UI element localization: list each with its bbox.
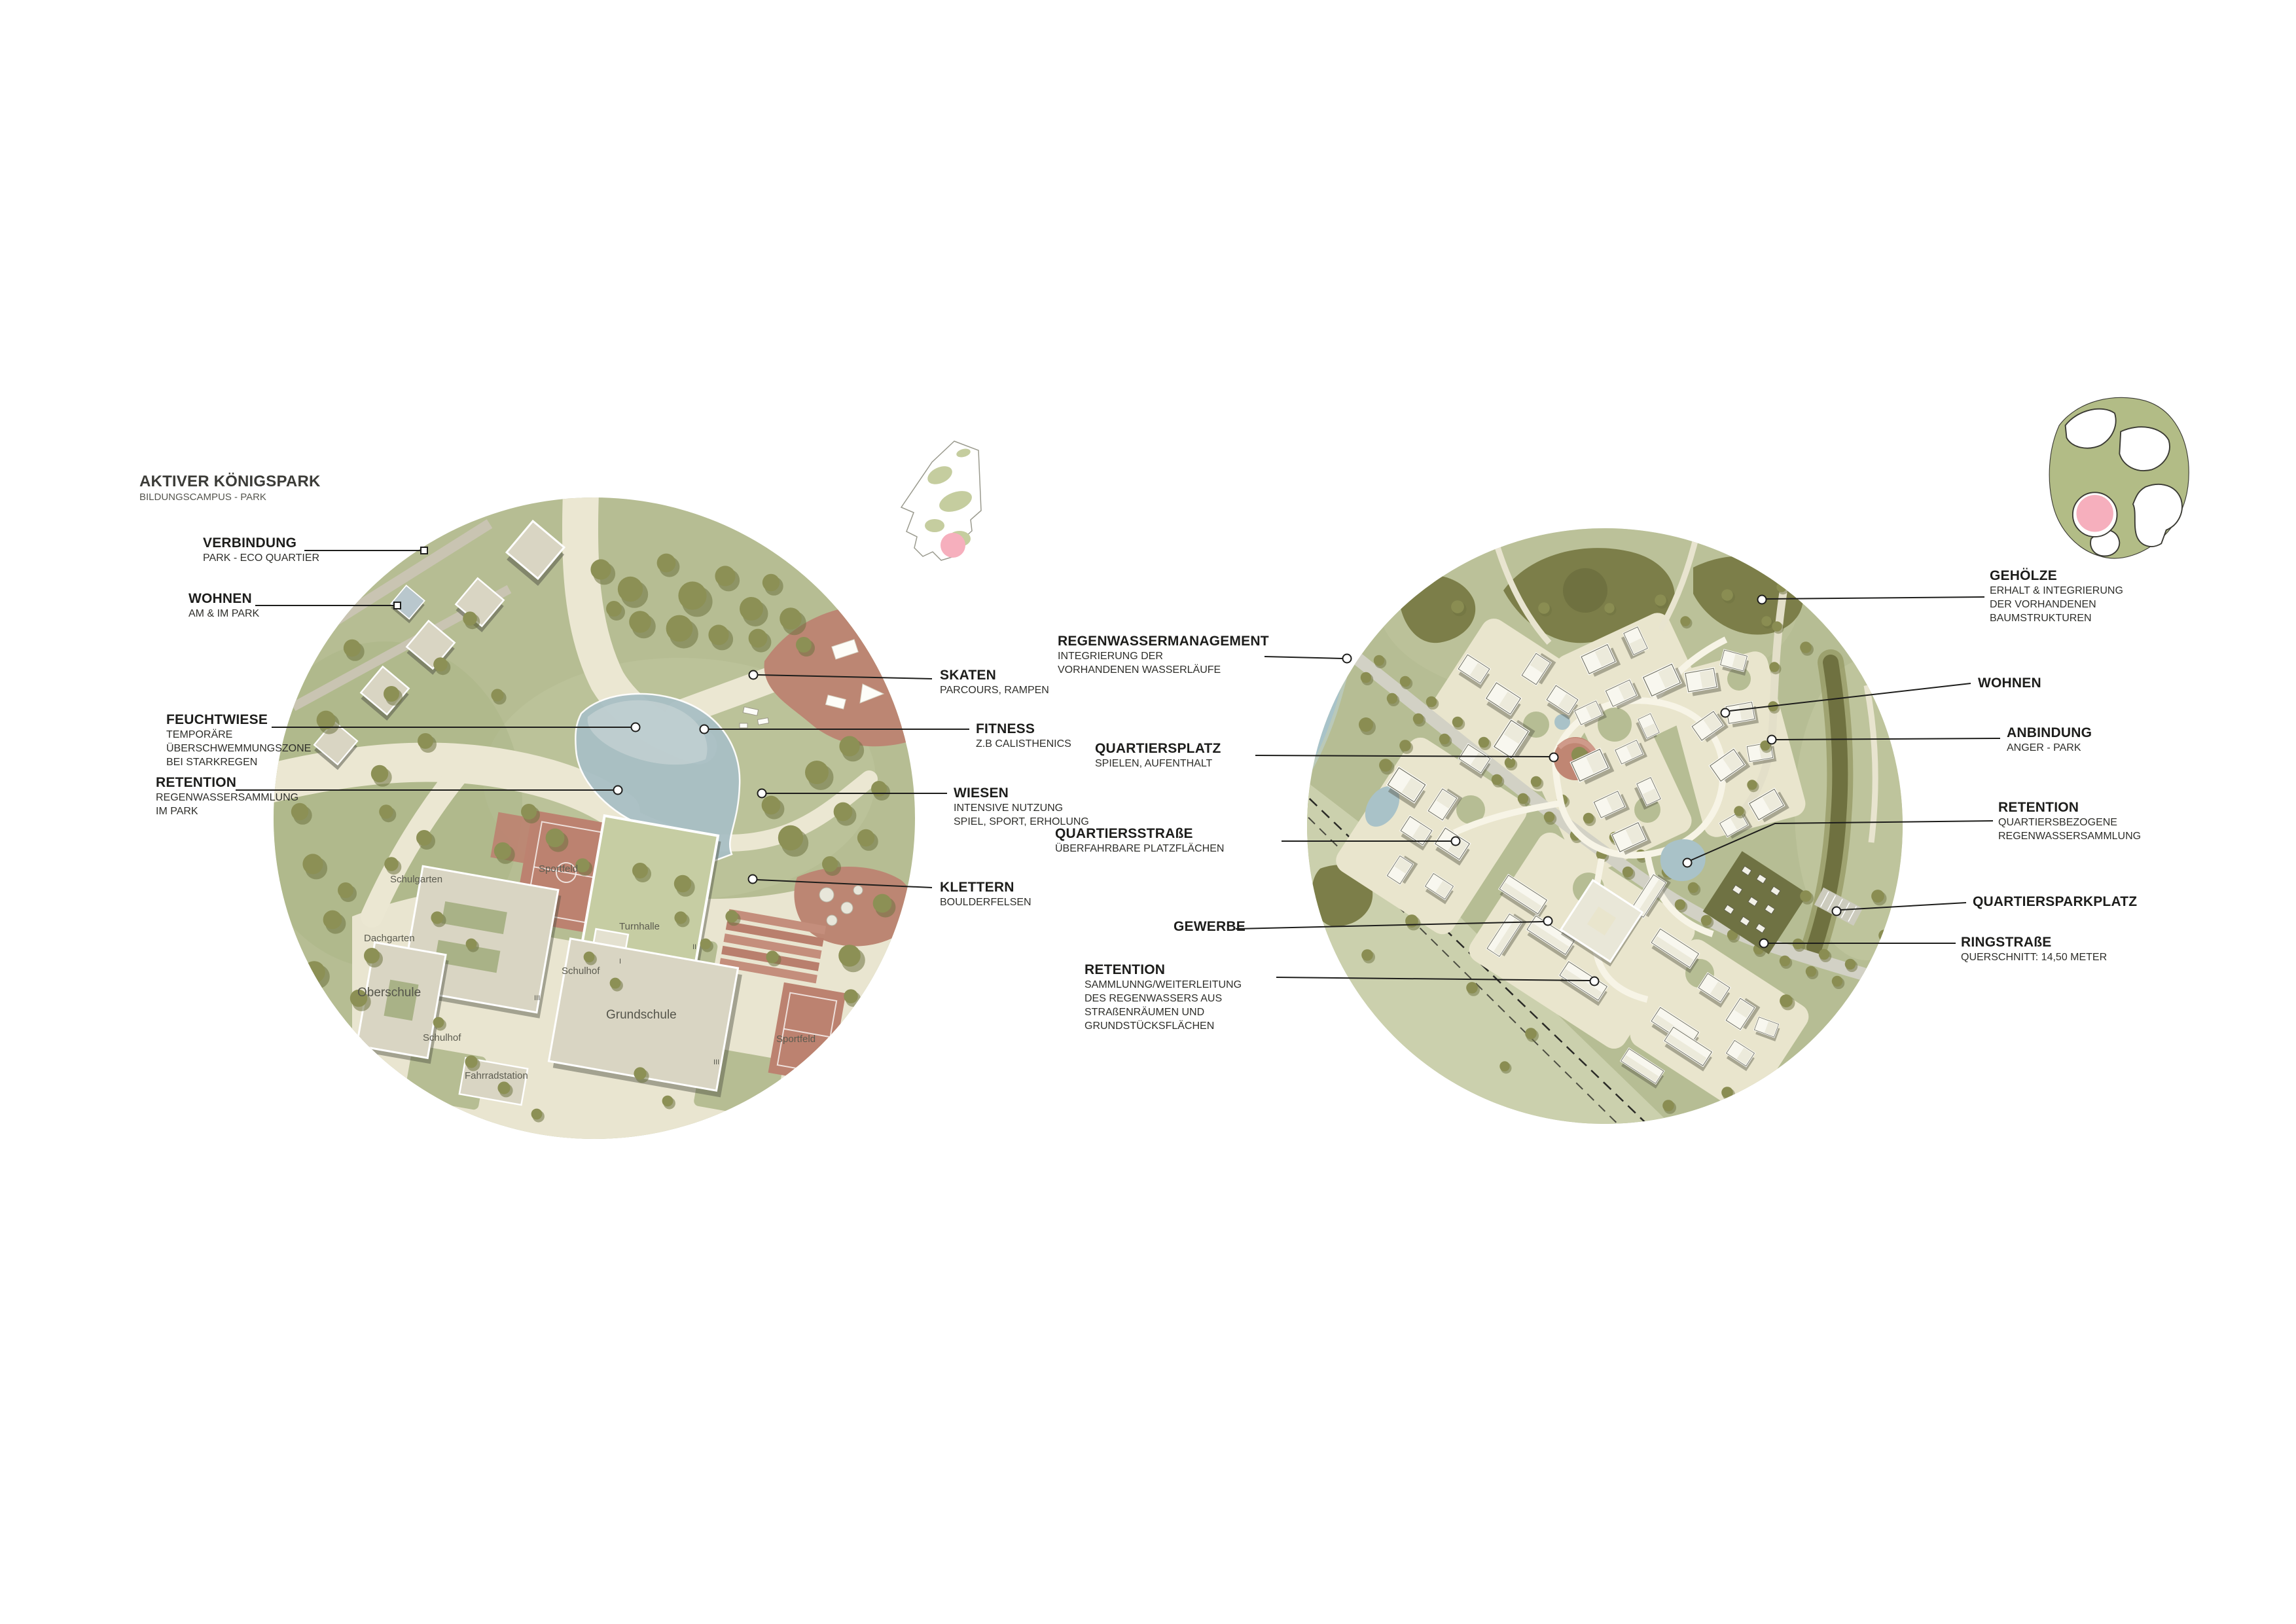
- site-key-map-quartier: [2041, 388, 2195, 574]
- label-retention-strasse: RETENTION SAMMLUNNG/WEITERLEITUNG DES RE…: [1085, 962, 1242, 1033]
- label-wohnen-park: WOHNEN AM & IM PARK: [188, 591, 259, 621]
- label-retention-quartier-head: RETENTION: [1998, 800, 2141, 816]
- label-quartiersstrasse-head: QUARTIERSSTRAßE: [1055, 826, 1224, 842]
- label-klettern: KLETTERN BOULDERFELSEN: [940, 880, 1031, 909]
- label-wohnen-park-sub: AM & IM PARK: [188, 607, 259, 621]
- label-ringstrasse: RINGSTRAßE QUERSCHNITT: 14,50 METER: [1961, 935, 2107, 964]
- label-retention-strasse-head: RETENTION: [1085, 962, 1242, 978]
- label-quartiersplatz: QUARTIERSPLATZ SPIELEN, AUFENTHALT: [1095, 741, 1221, 770]
- label-wohnen-quartier-head: WOHNEN: [1978, 676, 2041, 691]
- map-label-dachgarten: Dachgarten: [364, 933, 415, 944]
- map-label-floors-annex: I: [619, 958, 621, 965]
- page-title-main: AKTIVER KÖNIGSPARK: [139, 473, 321, 491]
- label-gewerbe-head: GEWERBE: [1174, 919, 1246, 935]
- park-detail-map: Schulgarten Sportfeld Dachgarten Obersch…: [274, 497, 915, 1139]
- label-regenwassermanagement: REGENWASSERMANAGEMENT INTEGRIERUNG DER V…: [1058, 634, 1269, 677]
- label-quartiersplatz-head: QUARTIERSPLATZ: [1095, 741, 1221, 757]
- label-wohnen-park-head: WOHNEN: [188, 591, 259, 607]
- label-verbindung-head: VERBINDUNG: [203, 535, 319, 551]
- map-label-schulgarten: Schulgarten: [390, 874, 442, 885]
- site-key-map-campus: [895, 437, 1000, 575]
- map-label-schulhof-west: Schulhof: [423, 1032, 461, 1043]
- label-verbindung-sub: PARK - ECO QUARTIER: [203, 551, 319, 565]
- label-quartiersparkplatz-head: QUARTIERSPARKPLATZ: [1973, 894, 2137, 910]
- label-regenwassermanagement-head: REGENWASSERMANAGEMENT: [1058, 634, 1269, 649]
- plan-sheet: AKTIVER KÖNIGSPARK BILDUNGSCAMPUS - PARK: [0, 0, 2296, 1624]
- map-label-grundschule: Grundschule: [606, 1008, 677, 1022]
- label-anbindung: ANBINDUNG ANGER - PARK: [2007, 725, 2092, 755]
- label-wohnen-quartier: WOHNEN: [1978, 676, 2041, 691]
- label-verbindung: VERBINDUNG PARK - ECO QUARTIER: [203, 535, 319, 565]
- map-label-fahrradstation: Fahrradstation: [465, 1070, 528, 1081]
- label-wiesen: WIESEN INTENSIVE NUTZUNG SPIEL, SPORT, E…: [954, 785, 1089, 829]
- label-retention-park-head: RETENTION: [156, 775, 298, 791]
- label-ringstrasse-head: RINGSTRAßE: [1961, 935, 2107, 950]
- map-label-floors-oberschule: III: [534, 994, 540, 1002]
- label-skaten: SKATEN PARCOURS, RAMPEN: [940, 668, 1049, 697]
- label-feuchtwiese: FEUCHTWIESE TEMPORÄRE ÜBERSCHWEMMUNGSZON…: [166, 712, 311, 769]
- label-gehoelze: GEHÖLZE ERHALT & INTEGRIERUNG DER VORHAN…: [1990, 568, 2123, 625]
- label-wiesen-head: WIESEN: [954, 785, 1089, 801]
- location-marker: [2077, 495, 2113, 532]
- label-fitness: FITNESS Z.B CALISTHENICS: [976, 721, 1071, 751]
- label-retention-quartier: RETENTION QUARTIERSBEZOGENE REGENWASSERS…: [1998, 800, 2141, 843]
- label-fitness-head: FITNESS: [976, 721, 1071, 737]
- map-label-sportfeld-ost: Sportfeld: [776, 1034, 816, 1045]
- label-feuchtwiese-head: FEUCHTWIESE: [166, 712, 311, 728]
- map-label-floors-grundschule: III: [713, 1058, 719, 1066]
- map-label-floors-turnhalle: II: [692, 943, 696, 951]
- quartier-detail-map: [1307, 528, 1903, 1124]
- location-marker: [941, 533, 965, 558]
- label-anbindung-head: ANBINDUNG: [2007, 725, 2092, 741]
- map-label-sportfeld-nord: Sportfeld: [539, 863, 578, 875]
- label-retention-park: RETENTION REGENWASSERSAMMLUNG IM PARK: [156, 775, 298, 818]
- label-quartiersstrasse: QUARTIERSSTRAßE ÜBERFAHRBARE PLATZFLÄCHE…: [1055, 826, 1224, 856]
- label-gehoelze-head: GEHÖLZE: [1990, 568, 2123, 584]
- map-label-schulhof-ost: Schulhof: [562, 965, 600, 977]
- map-label-oberschule: Oberschule: [357, 986, 421, 1000]
- label-klettern-head: KLETTERN: [940, 880, 1031, 895]
- label-quartiersparkplatz: QUARTIERSPARKPLATZ: [1973, 894, 2137, 910]
- label-gewerbe: GEWERBE: [1174, 919, 1246, 935]
- label-skaten-head: SKATEN: [940, 668, 1049, 683]
- map-label-turnhalle: Turnhalle: [619, 921, 660, 932]
